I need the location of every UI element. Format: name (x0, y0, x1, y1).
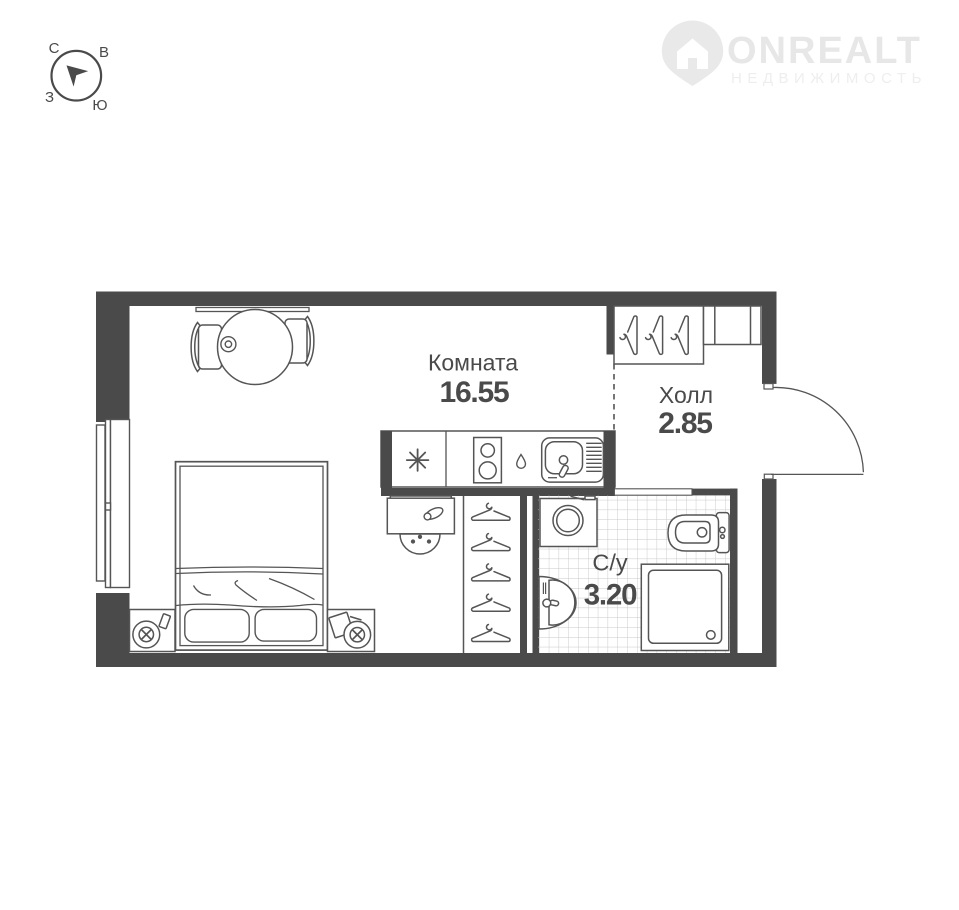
svg-text:16.55: 16.55 (439, 376, 509, 409)
svg-text:2.85: 2.85 (658, 407, 712, 440)
svg-text:Комната: Комната (428, 350, 518, 376)
svg-text:С/у: С/у (592, 550, 628, 576)
svg-text:В: В (99, 44, 109, 61)
svg-text:ONREALT: ONREALT (727, 30, 922, 72)
svg-text:С: С (49, 40, 60, 57)
svg-text:З: З (45, 89, 54, 106)
svg-text:Ю: Ю (92, 97, 107, 114)
svg-text:3.20: 3.20 (584, 579, 637, 612)
svg-text:Холл: Холл (659, 382, 713, 408)
svg-text:НЕДВИЖИМОСТЬ: НЕДВИЖИМОСТЬ (731, 70, 927, 87)
